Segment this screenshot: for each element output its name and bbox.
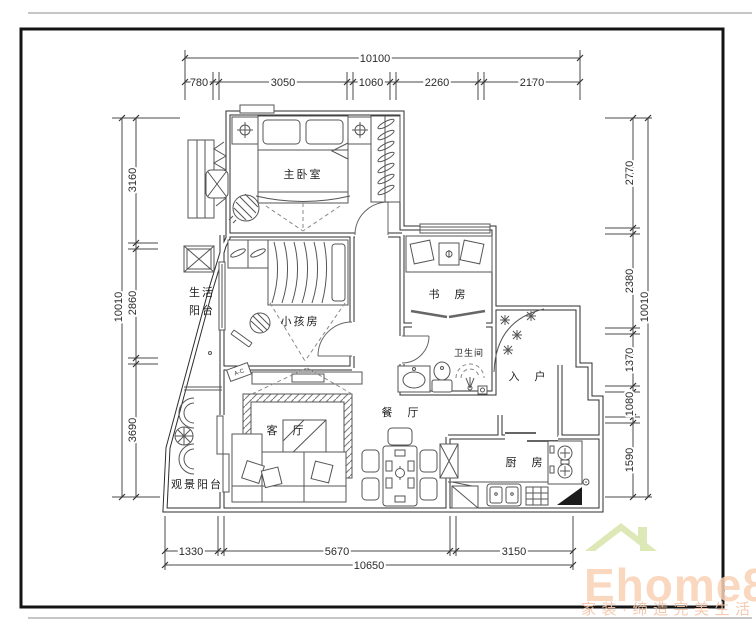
room-label-view-balcony: 观景阳台 bbox=[171, 477, 223, 491]
dim-left-total: 10010 bbox=[113, 292, 125, 323]
dim-top-total: 10100 bbox=[360, 53, 391, 65]
wardrobe bbox=[371, 116, 400, 202]
chair bbox=[420, 450, 437, 472]
dim-bottom-total: 10650 bbox=[354, 560, 385, 572]
room-label-bathroom: 卫生间 bbox=[454, 347, 484, 358]
chair bbox=[362, 450, 379, 472]
plant-icon bbox=[512, 330, 522, 340]
room-label-life-balcony-2: 阳台 bbox=[189, 303, 215, 317]
dim-top-seg-0: 780 bbox=[190, 77, 208, 89]
floor-plan-page: 10100 780 3050 1060 2260 2170 10010 3160… bbox=[0, 0, 756, 630]
pillow bbox=[410, 240, 434, 264]
pillow bbox=[311, 461, 333, 483]
kids-window bbox=[219, 262, 225, 330]
plant-icon bbox=[526, 311, 536, 321]
dining-table bbox=[383, 446, 417, 506]
chair bbox=[388, 428, 412, 445]
balcony-table bbox=[175, 427, 193, 445]
pillow bbox=[261, 467, 282, 488]
dim-right-seg-1: 2380 bbox=[624, 269, 636, 293]
study-furniture bbox=[406, 236, 492, 272]
room-label-kids-room: 小孩房 bbox=[281, 315, 320, 328]
pillow bbox=[263, 120, 300, 144]
room-label-master-bedroom: 主卧室 bbox=[284, 167, 323, 181]
dim-right-total: 10010 bbox=[639, 292, 651, 323]
room-label-living: 客 厅 bbox=[266, 423, 309, 437]
dim-right-seg-2: 1370 bbox=[624, 348, 636, 372]
dim-right-seg-4: 1590 bbox=[624, 448, 636, 472]
dish-rack bbox=[526, 487, 548, 505]
pillow bbox=[306, 120, 343, 144]
kids-bed bbox=[268, 240, 348, 305]
dim-top-seg-3: 2260 bbox=[425, 77, 449, 89]
stove-icon bbox=[548, 441, 582, 484]
flue-box bbox=[240, 105, 274, 113]
stool bbox=[250, 313, 270, 333]
dim-bottom-seg-0: 1330 bbox=[179, 546, 203, 558]
room-label-study: 书 房 bbox=[428, 288, 471, 301]
plant-icon bbox=[500, 315, 510, 325]
dim-top-seg-1: 3050 bbox=[271, 77, 295, 89]
dim-left-seg-1: 2860 bbox=[127, 291, 139, 315]
dim-left-seg-2: 3690 bbox=[127, 418, 139, 442]
sink-icon bbox=[487, 484, 521, 506]
study-window bbox=[420, 224, 490, 233]
dim-left-seg-0: 3160 bbox=[127, 168, 139, 192]
room-label-life-balcony-1: 生活 bbox=[189, 285, 215, 299]
floor-plan-svg: 10100 780 3050 1060 2260 2170 10010 3160… bbox=[0, 0, 756, 630]
watermark-tagline: 家装·缔造完美生活 bbox=[581, 601, 756, 618]
dim-top-seg-2: 1060 bbox=[359, 77, 383, 89]
dim-bottom-seg-2: 3150 bbox=[502, 546, 526, 558]
pillow bbox=[332, 244, 345, 301]
kids-wardrobe bbox=[228, 240, 268, 268]
room-label-entry: 入 户 bbox=[508, 369, 551, 383]
chair bbox=[420, 478, 437, 500]
room-label-kitchen: 厨 房 bbox=[505, 456, 548, 469]
chair bbox=[362, 478, 379, 500]
dim-top-seg-4: 2170 bbox=[520, 77, 544, 89]
life-balcony-fixtures bbox=[184, 246, 214, 272]
plant-icon bbox=[503, 345, 513, 355]
fridge bbox=[452, 482, 478, 508]
dim-bottom-seg-1: 5670 bbox=[325, 546, 349, 558]
dim-right-seg-3: 1080 bbox=[624, 392, 636, 416]
room-label-dining: 餐 厅 bbox=[381, 405, 424, 419]
pillow bbox=[460, 240, 484, 264]
dim-right-seg-0: 2770 bbox=[624, 161, 636, 185]
